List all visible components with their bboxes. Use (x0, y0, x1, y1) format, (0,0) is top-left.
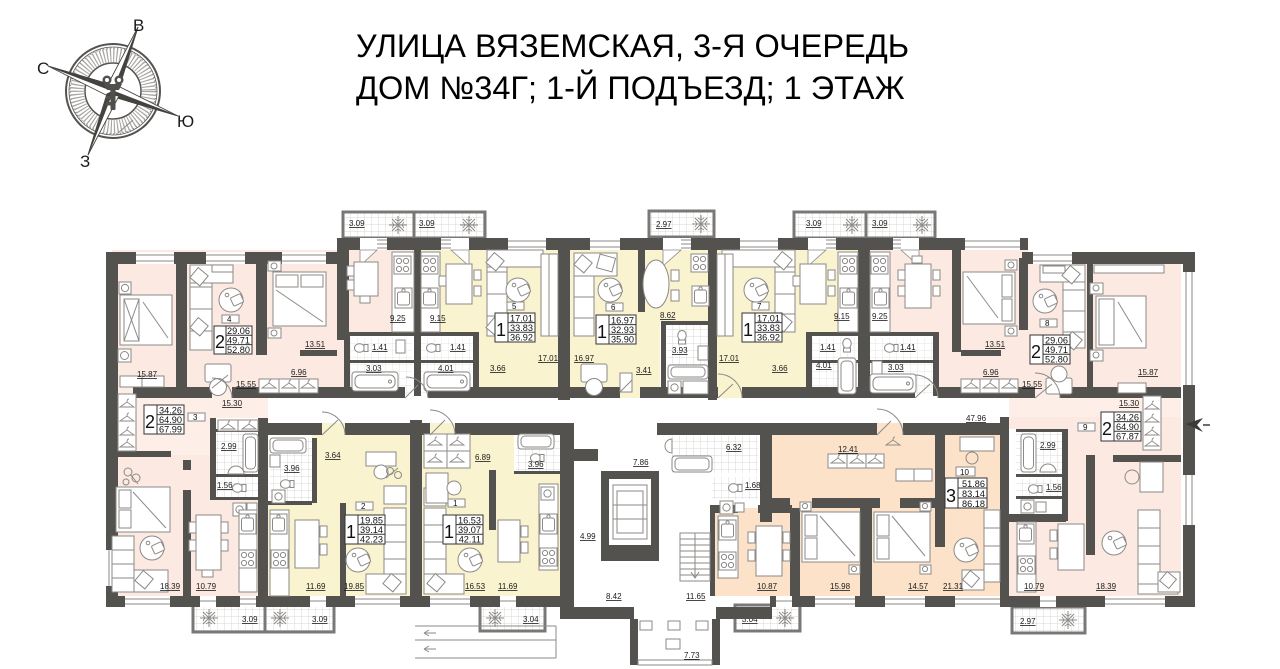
svg-text:2: 2 (215, 332, 225, 352)
svg-text:1: 1 (743, 320, 753, 340)
svg-text:10.87: 10.87 (757, 582, 778, 591)
svg-text:9.15: 9.15 (430, 314, 446, 323)
svg-text:3.09: 3.09 (242, 615, 258, 624)
svg-text:15.87: 15.87 (137, 370, 158, 379)
svg-text:2: 2 (1031, 342, 1041, 362)
svg-text:18.39: 18.39 (1096, 582, 1117, 591)
svg-text:3: 3 (946, 486, 956, 506)
svg-text:2: 2 (145, 412, 155, 432)
svg-text:1.41: 1.41 (372, 343, 388, 352)
svg-text:36.92: 36.92 (510, 333, 533, 343)
svg-text:7.86: 7.86 (633, 458, 649, 467)
svg-text:13.51: 13.51 (985, 340, 1006, 349)
svg-text:3.66: 3.66 (490, 364, 506, 373)
svg-text:16.53: 16.53 (458, 516, 481, 526)
svg-text:1: 1 (496, 320, 506, 340)
svg-text:3.04: 3.04 (523, 615, 539, 624)
svg-text:17.01: 17.01 (719, 354, 740, 363)
svg-text:З: З (80, 152, 90, 171)
svg-text:3.09: 3.09 (806, 219, 822, 228)
svg-text:42.11: 42.11 (459, 535, 481, 545)
svg-text:4.01: 4.01 (816, 361, 832, 370)
svg-text:21.31: 21.31 (943, 582, 964, 591)
svg-text:49.71: 49.71 (1045, 345, 1068, 355)
svg-text:35.90: 35.90 (611, 335, 634, 345)
svg-text:1.41: 1.41 (450, 343, 466, 352)
svg-text:13.51: 13.51 (305, 340, 326, 349)
svg-text:9: 9 (1083, 423, 1088, 432)
svg-text:10: 10 (960, 468, 969, 477)
svg-text:17.01: 17.01 (757, 314, 780, 324)
svg-text:ДОМ №34Г; 1-Й ПОДЪЕЗД; 1 ЭТАЖ: ДОМ №34Г; 1-Й ПОДЪЕЗД; 1 ЭТАЖ (356, 69, 905, 106)
svg-text:2.97: 2.97 (656, 220, 672, 229)
svg-text:67.87: 67.87 (1116, 432, 1139, 442)
svg-text:8.62: 8.62 (660, 311, 676, 320)
svg-text:7: 7 (757, 302, 762, 311)
svg-text:15.87: 15.87 (1138, 368, 1159, 377)
svg-text:1: 1 (444, 522, 454, 542)
svg-text:Ю: Ю (177, 112, 194, 131)
svg-text:2.99: 2.99 (221, 442, 237, 451)
svg-text:86.18: 86.18 (962, 499, 985, 509)
svg-text:39.14: 39.14 (360, 525, 383, 535)
svg-text:9.15: 9.15 (834, 312, 850, 321)
svg-text:51.86: 51.86 (962, 479, 985, 489)
svg-text:52.80: 52.80 (1045, 355, 1068, 365)
svg-text:64.90: 64.90 (1116, 422, 1139, 432)
svg-text:8: 8 (1045, 319, 1050, 328)
svg-text:11.69: 11.69 (306, 582, 326, 591)
svg-text:3.09: 3.09 (349, 219, 365, 228)
svg-text:19.85: 19.85 (360, 516, 383, 526)
svg-text:3.03: 3.03 (888, 363, 904, 372)
svg-text:3.09: 3.09 (312, 615, 328, 624)
svg-text:В: В (133, 16, 144, 35)
svg-text:16.97: 16.97 (611, 316, 634, 326)
svg-text:1: 1 (346, 522, 356, 542)
svg-text:34.26: 34.26 (1116, 413, 1139, 423)
svg-text:6.89: 6.89 (475, 453, 491, 462)
svg-text:33.83: 33.83 (757, 323, 780, 333)
svg-text:34.26: 34.26 (159, 406, 182, 416)
svg-text:9.25: 9.25 (390, 314, 406, 323)
svg-text:6.96: 6.96 (291, 368, 307, 377)
svg-text:8.42: 8.42 (606, 592, 622, 601)
svg-text:3.66: 3.66 (772, 364, 788, 373)
svg-text:2.99: 2.99 (1040, 441, 1056, 450)
svg-text:10.79: 10.79 (1024, 582, 1045, 591)
svg-text:6.32: 6.32 (726, 443, 742, 452)
svg-text:15.30: 15.30 (222, 399, 243, 408)
svg-text:1.41: 1.41 (900, 343, 916, 352)
svg-text:4.01: 4.01 (438, 364, 454, 373)
svg-text:17.01: 17.01 (510, 314, 533, 324)
svg-text:С: С (37, 59, 49, 78)
svg-text:15.55: 15.55 (1022, 380, 1043, 389)
svg-text:11.65: 11.65 (686, 592, 706, 601)
svg-text:3.09: 3.09 (419, 219, 435, 228)
svg-text:39.07: 39.07 (458, 525, 481, 535)
svg-text:3.41: 3.41 (636, 366, 652, 375)
svg-text:15.55: 15.55 (236, 380, 257, 389)
svg-text:5: 5 (512, 302, 517, 311)
svg-text:9.25: 9.25 (872, 312, 888, 321)
svg-text:15.30: 15.30 (1119, 399, 1140, 408)
svg-text:3.93: 3.93 (672, 346, 688, 355)
svg-text:16.97: 16.97 (574, 354, 595, 363)
svg-text:4: 4 (227, 315, 232, 324)
svg-text:52.80: 52.80 (227, 345, 250, 355)
svg-text:15.98: 15.98 (830, 582, 851, 591)
svg-text:1.56: 1.56 (1046, 483, 1062, 492)
svg-text:1: 1 (453, 499, 458, 508)
svg-text:4.99: 4.99 (580, 532, 596, 541)
svg-text:29.06: 29.06 (227, 326, 250, 336)
svg-text:10.79: 10.79 (196, 582, 217, 591)
svg-text:67.99: 67.99 (159, 425, 182, 435)
svg-text:19.85: 19.85 (344, 582, 365, 591)
svg-text:11.69: 11.69 (498, 582, 518, 591)
svg-text:3: 3 (193, 413, 198, 422)
svg-text:2.97: 2.97 (1020, 617, 1036, 626)
svg-text:1.56: 1.56 (217, 481, 233, 490)
svg-text:14.57: 14.57 (908, 582, 929, 591)
svg-text:1.68: 1.68 (745, 481, 761, 490)
svg-text:3.64: 3.64 (325, 451, 341, 460)
svg-text:16.53: 16.53 (465, 582, 486, 591)
svg-text:1.41: 1.41 (820, 343, 836, 352)
svg-text:3.96: 3.96 (284, 464, 300, 473)
svg-text:18.39: 18.39 (160, 582, 181, 591)
svg-text:УЛИЦА ВЯЗЕМСКАЯ, 3-Я ОЧЕРЕДЬ: УЛИЦА ВЯЗЕМСКАЯ, 3-Я ОЧЕРЕДЬ (356, 28, 909, 64)
svg-text:47.96: 47.96 (966, 414, 987, 423)
svg-text:2: 2 (1102, 419, 1112, 439)
svg-text:3.03: 3.03 (366, 364, 382, 373)
svg-text:36.92: 36.92 (757, 333, 780, 343)
svg-text:64.90: 64.90 (159, 415, 182, 425)
svg-text:12.41: 12.41 (838, 445, 859, 454)
svg-text:33.83: 33.83 (510, 323, 533, 333)
svg-text:7.73: 7.73 (684, 651, 700, 660)
svg-text:42.23: 42.23 (360, 535, 383, 545)
svg-text:29.06: 29.06 (1045, 336, 1068, 346)
svg-text:3.96: 3.96 (528, 460, 544, 469)
svg-text:17.01: 17.01 (538, 354, 559, 363)
svg-text:2: 2 (361, 502, 366, 511)
svg-text:6.96: 6.96 (983, 368, 999, 377)
svg-text:6: 6 (611, 303, 616, 312)
svg-text:83.14: 83.14 (962, 489, 985, 499)
svg-text:3.09: 3.09 (872, 219, 888, 228)
svg-text:1: 1 (597, 322, 607, 342)
svg-text:32.93: 32.93 (611, 325, 634, 335)
